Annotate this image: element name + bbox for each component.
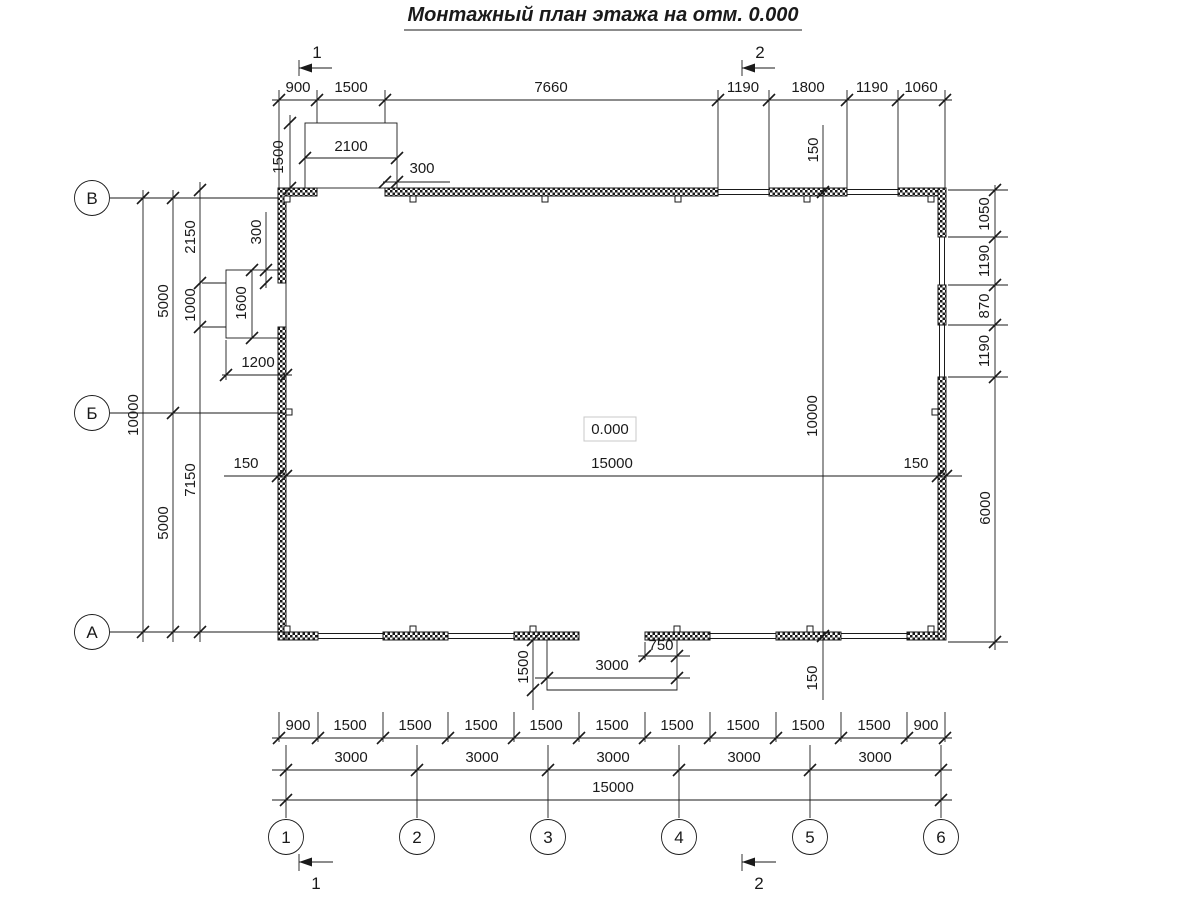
dim-label: 750 xyxy=(648,637,673,654)
mounting-mark xyxy=(932,409,938,415)
dim-label: 7660 xyxy=(534,79,567,96)
dim-left-outer: 10000 5000 5000 2150 1000 7150 xyxy=(125,182,226,642)
dim-label: 2150 xyxy=(182,220,199,253)
wall-segment xyxy=(278,327,286,640)
walls xyxy=(278,188,946,640)
dim-label: 300 xyxy=(409,160,434,177)
dim-label: 3000 xyxy=(334,749,367,766)
dim-label: 150 xyxy=(233,455,258,472)
section-arrow-icon xyxy=(299,64,312,73)
dim-chain-right: 1050 1190 870 1190 6000 xyxy=(948,184,1008,650)
wall-segment xyxy=(938,188,946,237)
dim-label: 3000 xyxy=(595,657,628,674)
dim-label: 15000 xyxy=(591,455,633,472)
dim-label: 1800 xyxy=(791,79,824,96)
section-marker-1-top: 1 xyxy=(299,43,332,76)
window xyxy=(847,190,898,195)
dim-label: 1190 xyxy=(976,335,993,367)
dim-label: 6000 xyxy=(977,491,994,524)
dim-label: 3000 xyxy=(465,749,498,766)
axis-label: 2 xyxy=(412,828,421,847)
section-arrow-icon xyxy=(742,64,755,73)
mounting-mark xyxy=(928,196,934,202)
window xyxy=(318,634,383,639)
dim-label: 7150 xyxy=(182,463,199,496)
row-axes: В Б А xyxy=(75,181,287,650)
wall-segment xyxy=(938,377,946,640)
mounting-mark xyxy=(542,196,548,202)
dim-label: 10000 xyxy=(125,394,142,436)
dim-label: 5000 xyxy=(155,284,172,317)
dim-top-porch: 1500 2100 300 xyxy=(270,115,450,194)
mounting-mark xyxy=(284,626,290,632)
dim-label: 3000 xyxy=(596,749,629,766)
dim-label: 10000 xyxy=(804,395,821,437)
dim-bottom-row1: 900 1500 1500 1500 1500 1500 1500 1500 1… xyxy=(272,712,952,744)
dim-label: 1600 xyxy=(233,286,250,319)
dim-label: 150 xyxy=(804,665,821,690)
dim-label: 300 xyxy=(248,219,265,244)
axis-label: 1 xyxy=(281,828,290,847)
dim-label: 870 xyxy=(976,293,993,318)
floor-plan-page: Монтажный план этажа на отм. 0.000 xyxy=(0,0,1200,900)
dim-label: 1050 xyxy=(976,197,993,230)
window xyxy=(940,237,945,285)
dim-label: 1200 xyxy=(241,354,274,371)
dim-label: 1500 xyxy=(333,717,366,734)
floor-plan-drawing: Монтажный план этажа на отм. 0.000 xyxy=(0,0,1200,900)
window xyxy=(710,634,776,639)
section-label: 1 xyxy=(312,43,321,62)
window xyxy=(718,190,769,195)
dim-label: 3000 xyxy=(727,749,760,766)
window xyxy=(841,634,907,639)
axis-label: А xyxy=(86,623,98,642)
section-marker-2-bottom: 2 xyxy=(742,854,776,893)
wall-segment xyxy=(938,285,946,325)
dim-label: 1500 xyxy=(791,717,824,734)
wall-segment xyxy=(383,632,448,640)
dim-bottom-row2: 3000 3000 3000 3000 3000 xyxy=(272,749,952,776)
dim-label: 1500 xyxy=(334,79,367,96)
section-label: 1 xyxy=(311,874,320,893)
windows xyxy=(318,190,945,639)
axis-label: 6 xyxy=(936,828,945,847)
mounting-mark xyxy=(674,626,680,632)
dim-chain-top: 900 1500 7660 1190 1800 1190 1060 xyxy=(272,79,952,188)
wall-segment xyxy=(769,188,847,196)
dim-label: 1500 xyxy=(660,717,693,734)
dim-label: 15000 xyxy=(592,779,634,796)
wall-segment xyxy=(776,632,841,640)
dim-label: 150 xyxy=(805,137,822,162)
elevation-value: 0.000 xyxy=(591,421,629,438)
axis-label: 5 xyxy=(805,828,814,847)
dim-label: 1500 xyxy=(726,717,759,734)
mounting-mark xyxy=(410,626,416,632)
mounting-mark xyxy=(530,626,536,632)
dim-label: 1190 xyxy=(856,79,888,96)
section-label: 2 xyxy=(755,43,764,62)
dim-label: 900 xyxy=(913,717,938,734)
porch-outline xyxy=(305,123,397,188)
axis-label: 4 xyxy=(674,828,683,847)
window xyxy=(448,634,514,639)
dim-bottom-total: 15000 xyxy=(272,779,952,806)
dim-label: 1500 xyxy=(595,717,628,734)
dim-label: 1000 xyxy=(182,288,199,321)
mounting-mark xyxy=(675,196,681,202)
axis-label: 3 xyxy=(543,828,552,847)
section-arrow-icon xyxy=(742,858,755,867)
dim-label: 150 xyxy=(903,455,928,472)
wall-segment xyxy=(385,188,718,196)
dim-label: 900 xyxy=(285,717,310,734)
mounting-mark xyxy=(286,409,292,415)
dim-mid-height: 150 10000 150 xyxy=(804,125,829,700)
dim-label: 1500 xyxy=(398,717,431,734)
section-arrow-icon xyxy=(299,858,312,867)
wall-segment xyxy=(514,632,579,640)
section-marker-1-bottom: 1 xyxy=(299,854,333,893)
dim-label: 2100 xyxy=(334,138,367,155)
window xyxy=(940,325,945,377)
dim-label: 1190 xyxy=(727,79,759,96)
top-porch xyxy=(305,123,397,188)
mounting-mark xyxy=(928,626,934,632)
axis-label: Б xyxy=(86,404,97,423)
drawing-title: Монтажный план этажа на отм. 0.000 xyxy=(404,4,802,30)
mounting-mark xyxy=(807,626,813,632)
dim-label: 5000 xyxy=(155,506,172,539)
dim-label: 900 xyxy=(285,79,310,96)
dim-label: 1500 xyxy=(529,717,562,734)
dim-mid-width: 150 15000 150 xyxy=(224,455,962,482)
axis-label: В xyxy=(86,189,97,208)
mounting-mark xyxy=(804,196,810,202)
title-text: Монтажный план этажа на отм. 0.000 xyxy=(408,4,799,26)
dim-label: 1500 xyxy=(515,650,532,683)
dim-label: 1190 xyxy=(976,245,993,277)
dim-label: 1500 xyxy=(857,717,890,734)
dim-entry-porch: 1500 3000 750 xyxy=(515,634,690,710)
dim-label: 1500 xyxy=(464,717,497,734)
elevation-mark: 0.000 xyxy=(584,417,636,441)
dim-label: 3000 xyxy=(858,749,891,766)
mounting-mark xyxy=(284,196,290,202)
dim-label: 1060 xyxy=(904,79,937,96)
section-marker-2-top: 2 xyxy=(742,43,775,76)
dim-label: 1500 xyxy=(270,140,287,173)
mounting-marks xyxy=(284,196,938,632)
section-label: 2 xyxy=(754,874,763,893)
mounting-mark xyxy=(410,196,416,202)
